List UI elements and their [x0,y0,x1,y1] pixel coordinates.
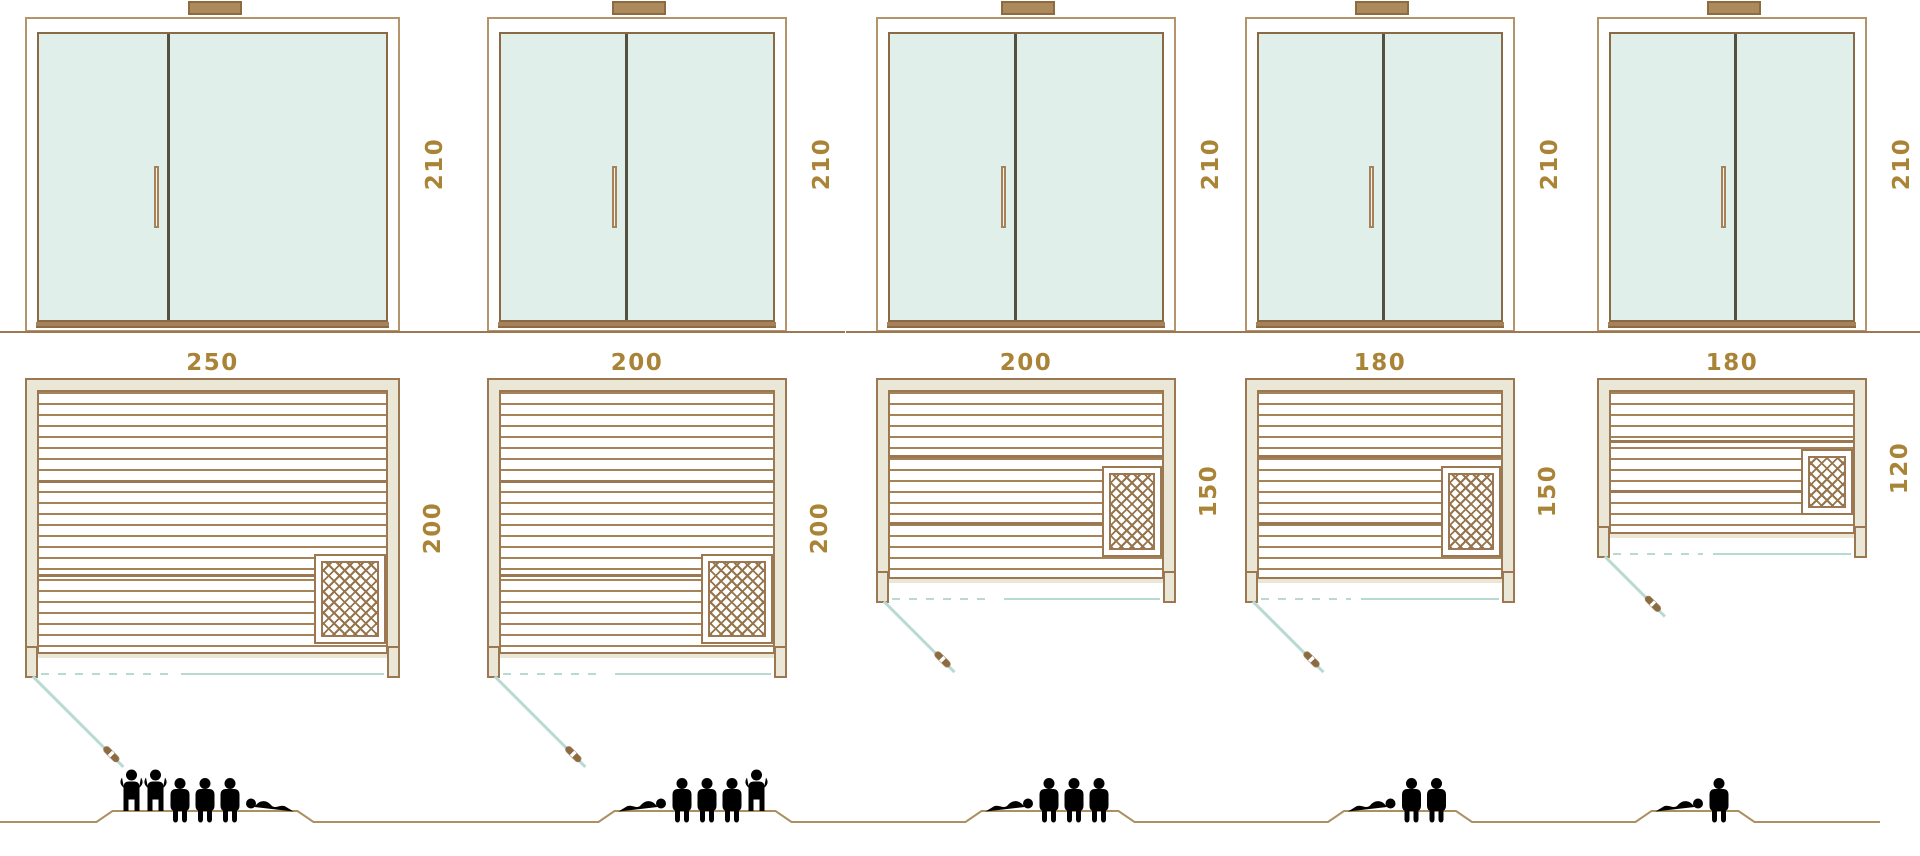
person-seated-icon [1040,778,1059,823]
person-lying-icon [1348,799,1396,812]
glass-wall-line [1713,553,1851,556]
person-seated-icon [673,778,692,823]
door-swing-line [883,600,955,672]
wall-post-left [1245,571,1258,603]
person-lying-icon [619,799,667,812]
chimney-icon [1355,1,1409,15]
door-handle-icon [1721,166,1726,228]
elevation-ground-line [457,331,845,333]
bench-edge-line [501,480,773,483]
bench-edge-line [1611,440,1853,443]
heater-icon [701,554,773,644]
person-seated-icon [196,778,215,823]
person-seated-icon [1427,778,1446,823]
wall-post-left [876,571,889,603]
door-swing-line [32,675,124,767]
door-sill [498,322,776,328]
wall-post-right [1502,571,1515,603]
plan-depth-label: 200 [420,492,446,564]
person-lying-icon [1656,799,1704,812]
plan-width-label: 180 [1597,350,1867,376]
bench-edge-line [1259,455,1501,458]
door-divider [1734,34,1737,320]
door-swing-handle-icon [1303,651,1321,669]
door-swing-line [494,675,586,767]
chimney-icon [188,1,242,15]
height-dimension-label: 210 [1198,128,1224,200]
door-swing-handle-icon [1644,595,1662,613]
heater-grid [1808,456,1846,508]
bench-edge-line [890,455,1162,458]
heater-icon [1441,466,1501,557]
chimney-icon [1707,1,1761,15]
door-open-dashed-line [1613,553,1703,556]
plan-width-label: 250 [25,350,400,376]
door-divider [625,34,628,320]
person-seated-icon [1065,778,1084,823]
plan-depth-label: 200 [807,492,833,564]
chimney-icon [612,1,666,15]
height-dimension-label: 210 [1889,128,1915,200]
person-standing-icon [120,770,142,812]
sauna-size-diagram: 2102502002102002002102001502101801502101… [0,0,1920,856]
door-sill [887,322,1165,328]
floor-plan: 250200 [25,378,400,678]
person-seated-icon [1402,778,1421,823]
heater-grid [1448,473,1494,550]
heater-grid [321,561,379,637]
chimney-icon [1001,1,1055,15]
glass-wall-line [1361,598,1499,601]
floor-plan: 200200 [487,378,787,678]
door-elevation: 210 [487,17,787,332]
glass-door-front [499,32,775,322]
glass-door-front [1257,32,1503,322]
door-divider [1014,34,1017,320]
glass-front-line [1261,598,1499,601]
door-swing-handle-icon [934,651,952,669]
glass-wall-line [181,673,384,676]
wall-post-right [1163,571,1176,603]
door-open-dashed-line [892,598,994,601]
door-sill [1256,322,1504,328]
ground-line [0,811,1880,822]
door-handle-icon [154,166,159,228]
person-seated-icon [221,778,240,823]
person-seated-icon [698,778,717,823]
person-seated-icon [1090,778,1109,823]
door-handle-icon [1001,166,1006,228]
elevation-ground-line [0,331,458,333]
door-divider [167,34,170,320]
heater-icon [1102,466,1162,557]
height-dimension-label: 210 [1537,128,1563,200]
door-divider [1382,34,1385,320]
person-standing-icon [144,770,166,812]
height-dimension-label: 210 [809,128,835,200]
glass-front-line [503,673,771,676]
capacity-row [0,760,1920,856]
heater-grid [1109,473,1155,550]
glass-door-front [888,32,1164,322]
door-elevation: 210 [25,17,400,332]
height-dimension-label: 210 [422,128,448,200]
floor-plan: 180120 [1597,378,1867,558]
glass-door-front [37,32,388,322]
door-sill [1608,322,1856,328]
wall-post-right [774,646,787,678]
wall-post-right [1854,526,1867,558]
person-lying-icon [986,799,1034,812]
door-elevation: 210 [876,17,1176,332]
glass-front-line [892,598,1160,601]
person-standing-icon [745,770,767,812]
heater-icon [314,554,386,644]
floor-plan: 180150 [1245,378,1515,603]
glass-wall-line [1004,598,1160,601]
wall-post-left [487,646,500,678]
plan-depth-label: 120 [1887,432,1913,504]
wall-post-left [25,646,38,678]
bench-edge-line [39,480,386,483]
glass-wall-line [615,673,771,676]
person-seated-icon [1710,778,1729,823]
plan-width-label: 180 [1245,350,1515,376]
plan-width-label: 200 [487,350,787,376]
plan-depth-label: 150 [1196,455,1222,527]
door-swing-line [1604,555,1666,617]
door-handle-icon [1369,166,1374,228]
glass-door-front [1609,32,1855,322]
door-elevation: 210 [1597,17,1867,332]
elevation-ground-line [1567,331,1920,333]
person-lying-icon [246,799,294,812]
elevation-ground-line [1215,331,1573,333]
elevation-ground-line [846,331,1234,333]
door-sill [36,322,389,328]
door-open-dashed-line [41,673,171,676]
door-elevation: 210 [1245,17,1515,332]
heater-icon [1801,449,1853,515]
door-open-dashed-line [1261,598,1351,601]
floor-plan: 200150 [876,378,1176,603]
plan-depth-label: 150 [1535,455,1561,527]
glass-front-line [1613,553,1851,556]
door-handle-icon [612,166,617,228]
person-seated-icon [171,778,190,823]
glass-front-line [41,673,384,676]
plan-width-label: 200 [876,350,1176,376]
heater-grid [708,561,766,637]
wall-post-right [387,646,400,678]
person-seated-icon [723,778,742,823]
door-swing-line [1252,600,1324,672]
door-open-dashed-line [503,673,605,676]
wall-post-left [1597,526,1610,558]
